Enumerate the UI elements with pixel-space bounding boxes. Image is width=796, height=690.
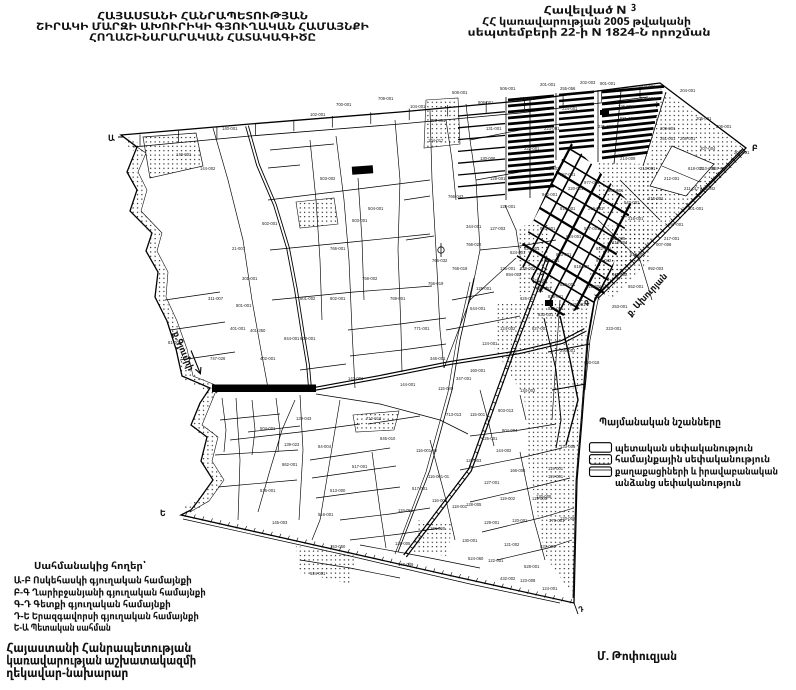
svg-text:133-006: 133-006	[560, 444, 576, 449]
svg-text:766-032: 766-032	[432, 258, 448, 263]
svg-text:822-001: 822-001	[544, 258, 560, 263]
svg-text:806-001: 806-001	[478, 100, 494, 105]
svg-text:115-001: 115-001	[470, 412, 486, 417]
svg-text:524-060: 524-060	[468, 556, 484, 561]
svg-text:118-000: 118-000	[430, 526, 446, 531]
svg-text:645-042: 645-042	[700, 186, 716, 191]
svg-text:346-001: 346-001	[430, 356, 446, 361]
svg-text:202-003: 202-003	[580, 80, 596, 85]
svg-text:119-002: 119-002	[500, 496, 516, 501]
svg-text:204-001: 204-001	[680, 88, 696, 93]
svg-text:709-001: 709-001	[378, 96, 394, 101]
svg-text:205-001: 205-001	[696, 116, 712, 121]
svg-text:542-001: 542-001	[624, 200, 640, 205]
svg-text:215-001: 215-001	[648, 196, 664, 201]
svg-text:577-001: 577-001	[584, 226, 600, 231]
svg-text:143-049: 143-049	[398, 562, 414, 567]
svg-text:210-001: 210-001	[700, 166, 716, 171]
svg-text:160-001: 160-001	[470, 368, 486, 373]
svg-text:221-003: 221-003	[544, 166, 560, 171]
svg-text:613-002: 613-002	[612, 272, 628, 277]
svg-text:769-001: 769-001	[390, 296, 406, 301]
svg-text:144-002: 144-002	[200, 166, 216, 171]
svg-text:119-001: 119-001	[548, 474, 564, 479]
svg-text:504-001: 504-001	[260, 426, 276, 431]
svg-text:901-001: 901-001	[600, 81, 616, 86]
svg-text:504-001: 504-001	[368, 206, 384, 211]
svg-text:119-001: 119-001	[548, 466, 564, 471]
svg-text:829-001: 829-001	[570, 302, 586, 307]
svg-text:139-023: 139-023	[284, 442, 300, 447]
svg-text:860-018: 860-018	[584, 360, 600, 365]
svg-text:131-001: 131-001	[486, 126, 502, 131]
svg-text:140-001: 140-001	[222, 126, 238, 131]
svg-text:124-002: 124-002	[500, 326, 516, 331]
svg-text:201-001: 201-001	[734, 150, 750, 155]
svg-text:118-051: 118-051	[398, 508, 414, 513]
svg-text:211-017: 211-017	[684, 186, 700, 191]
svg-text:097-001: 097-001	[668, 222, 684, 227]
svg-text:766-019: 766-019	[428, 281, 444, 286]
svg-text:126-003: 126-003	[466, 458, 482, 463]
svg-text:121-002: 121-002	[504, 542, 520, 547]
svg-text:712-013: 712-013	[366, 416, 382, 421]
svg-text:826-001: 826-001	[548, 306, 564, 311]
svg-text:820-001: 820-001	[560, 282, 576, 287]
svg-text:125-001: 125-001	[482, 436, 498, 441]
svg-text:963-001: 963-001	[608, 188, 624, 193]
svg-text:506-001: 506-001	[500, 86, 516, 91]
svg-text:219-001: 219-001	[588, 206, 604, 211]
svg-text:217-001: 217-001	[664, 236, 680, 241]
svg-text:402-001: 402-001	[260, 356, 276, 361]
svg-text:818-001: 818-001	[560, 206, 576, 211]
svg-text:220-001: 220-001	[568, 186, 584, 191]
svg-text:803-001: 803-001	[300, 336, 316, 341]
svg-text:830-001: 830-001	[538, 312, 554, 317]
svg-text:401-350: 401-350	[250, 328, 266, 333]
svg-text:255-056: 255-056	[560, 86, 576, 91]
svg-text:218-004: 218-004	[612, 240, 628, 245]
svg-text:894-002: 894-002	[506, 272, 522, 277]
svg-text:251-001: 251-001	[660, 136, 676, 141]
svg-text:224-001: 224-001	[562, 106, 578, 111]
svg-text:116-002: 116-002	[432, 498, 448, 503]
svg-text:213-001: 213-001	[640, 166, 656, 171]
svg-text:126-001: 126-001	[500, 266, 516, 271]
svg-text:128-001: 128-001	[500, 204, 516, 209]
svg-text:508-001: 508-001	[452, 90, 468, 95]
svg-text:116-001-92: 116-001-92	[416, 448, 438, 453]
svg-text:290-001: 290-001	[560, 348, 576, 353]
svg-text:819-001: 819-001	[586, 284, 602, 289]
svg-text:253-001: 253-001	[612, 304, 628, 309]
svg-text:130-006: 130-006	[480, 156, 496, 161]
svg-text:143-001: 143-001	[348, 376, 364, 381]
svg-text:216-001: 216-001	[628, 216, 644, 221]
svg-text:375-001: 375-001	[549, 518, 565, 523]
svg-text:344-001: 344-001	[466, 224, 482, 229]
svg-text:166-008: 166-008	[510, 468, 526, 473]
svg-text:432-002: 432-002	[500, 576, 516, 581]
svg-text:203-001: 203-001	[640, 84, 656, 89]
svg-text:206-001: 206-001	[716, 124, 732, 129]
svg-text:108-001: 108-001	[520, 96, 536, 101]
svg-text:893-001: 893-001	[556, 252, 572, 257]
svg-text:007-006: 007-006	[656, 242, 672, 247]
svg-text:144-001: 144-001	[400, 382, 416, 387]
svg-text:130-001: 130-001	[462, 538, 478, 543]
svg-text:120-001: 120-001	[512, 518, 528, 523]
svg-text:942-001: 942-001	[542, 192, 558, 197]
svg-text:766-001: 766-001	[330, 246, 346, 251]
svg-text:801-002: 801-002	[300, 296, 316, 301]
svg-text:21-007: 21-007	[232, 246, 246, 251]
svg-text:524-001: 524-001	[310, 571, 326, 576]
svg-text:123-008: 123-008	[520, 578, 536, 583]
svg-text:347-001: 347-001	[456, 376, 472, 381]
svg-text:208-001: 208-001	[680, 136, 696, 141]
svg-text:115-080: 115-080	[438, 386, 454, 391]
svg-text:528-001: 528-001	[524, 564, 540, 569]
svg-text:766-043: 766-043	[448, 194, 464, 199]
svg-text:140-001: 140-001	[176, 152, 192, 157]
svg-text:824-001: 824-001	[566, 234, 582, 239]
svg-text:138-005: 138-005	[395, 541, 411, 546]
svg-text:129-001: 129-001	[490, 176, 506, 181]
svg-text:209-001: 209-001	[660, 126, 676, 131]
svg-text:125-001: 125-001	[476, 286, 492, 291]
svg-text:516-001: 516-001	[260, 488, 276, 493]
svg-text:804-004: 804-004	[502, 428, 518, 433]
svg-text:120-008: 120-008	[536, 494, 552, 499]
svg-text:818-002: 818-002	[574, 264, 590, 269]
svg-text:823-001: 823-001	[532, 278, 548, 283]
svg-text:766-022: 766-022	[466, 242, 482, 247]
svg-text:144-002: 144-002	[496, 448, 512, 453]
svg-text:503-002: 503-002	[320, 176, 336, 181]
svg-text:624-001: 624-001	[510, 250, 526, 255]
svg-text:503-001: 503-001	[352, 218, 368, 223]
svg-text:828-001: 828-001	[548, 294, 564, 299]
svg-text:84-004: 84-004	[318, 444, 332, 449]
svg-text:127-001: 127-001	[484, 480, 500, 485]
svg-text:225-001: 225-001	[430, 118, 446, 123]
svg-text:145-003: 145-003	[272, 520, 288, 525]
svg-text:139-043: 139-043	[296, 416, 312, 421]
svg-text:311-007: 311-007	[208, 296, 224, 301]
svg-text:502-001: 502-001	[262, 221, 278, 226]
svg-text:619-001: 619-001	[630, 252, 646, 257]
svg-text:513-000: 513-000	[330, 488, 346, 493]
svg-text:862-001: 862-001	[282, 462, 298, 467]
svg-text:517-001: 517-001	[352, 464, 368, 469]
svg-text:226-001: 226-001	[618, 104, 634, 109]
svg-text:825-001: 825-001	[536, 286, 552, 291]
svg-text:401-001: 401-001	[230, 326, 246, 331]
svg-text:652-001: 652-001	[628, 284, 644, 289]
svg-text:143-050: 143-050	[330, 544, 346, 549]
svg-text:642-001: 642-001	[596, 246, 612, 251]
svg-text:845-010: 845-010	[380, 436, 396, 441]
svg-text:803-013: 803-013	[498, 408, 514, 413]
svg-text:768-019: 768-019	[452, 266, 468, 271]
svg-text:225-006: 225-006	[598, 124, 614, 129]
svg-text:601-001: 601-001	[688, 206, 704, 211]
svg-text:581-001: 581-001	[620, 116, 636, 121]
svg-text:844-001: 844-001	[284, 336, 300, 341]
svg-text:201-001: 201-001	[540, 82, 556, 87]
svg-text:124-001: 124-001	[482, 341, 498, 346]
svg-text:124-001: 124-001	[542, 586, 558, 591]
svg-text:992-003: 992-003	[648, 266, 664, 271]
svg-text:214-009: 214-009	[620, 156, 636, 161]
svg-text:537-001: 537-001	[540, 544, 556, 549]
svg-text:604-001: 604-001	[640, 96, 656, 101]
svg-text:102-001: 102-001	[310, 112, 326, 117]
svg-text:614-042: 614-042	[596, 258, 612, 263]
svg-text:127-003: 127-003	[490, 226, 506, 231]
svg-text:222-001: 222-001	[524, 146, 540, 151]
svg-text:129-001: 129-001	[484, 520, 500, 525]
svg-text:122-001: 122-001	[488, 558, 504, 563]
svg-text:516-001: 516-001	[318, 512, 334, 517]
svg-text:713-013: 713-013	[446, 412, 462, 417]
svg-text:116-001-01: 116-001-01	[428, 474, 450, 479]
svg-text:134-002: 134-002	[520, 388, 536, 393]
svg-text:801-001: 801-001	[236, 303, 252, 308]
svg-text:771-001: 771-001	[414, 326, 430, 331]
svg-text:957-001: 957-001	[560, 172, 576, 177]
svg-text:824-001: 824-001	[524, 246, 540, 251]
svg-text:977-001: 977-001	[584, 180, 600, 185]
svg-text:223-001: 223-001	[606, 326, 622, 331]
svg-text:212-001: 212-001	[664, 176, 680, 181]
svg-text:700-001: 700-001	[336, 102, 352, 107]
svg-text:820-001: 820-001	[540, 226, 556, 231]
svg-text:104-017: 104-017	[428, 138, 444, 143]
svg-text:802-001: 802-001	[330, 296, 346, 301]
svg-text:128-005: 128-005	[466, 502, 482, 507]
svg-text:223-001: 223-001	[544, 126, 560, 131]
svg-text:517-001: 517-001	[412, 486, 428, 491]
svg-text:747-026: 747-026	[210, 356, 226, 361]
svg-text:827-001: 827-001	[532, 326, 548, 331]
svg-text:768-002: 768-002	[362, 276, 378, 281]
svg-text:625-001: 625-001	[520, 296, 536, 301]
svg-text:104-001: 104-001	[410, 104, 426, 109]
svg-text:829-002: 829-002	[520, 266, 536, 271]
svg-text:301-001: 301-001	[242, 276, 258, 281]
svg-text:207-004: 207-004	[700, 146, 716, 151]
svg-text:544-001: 544-001	[470, 306, 486, 311]
